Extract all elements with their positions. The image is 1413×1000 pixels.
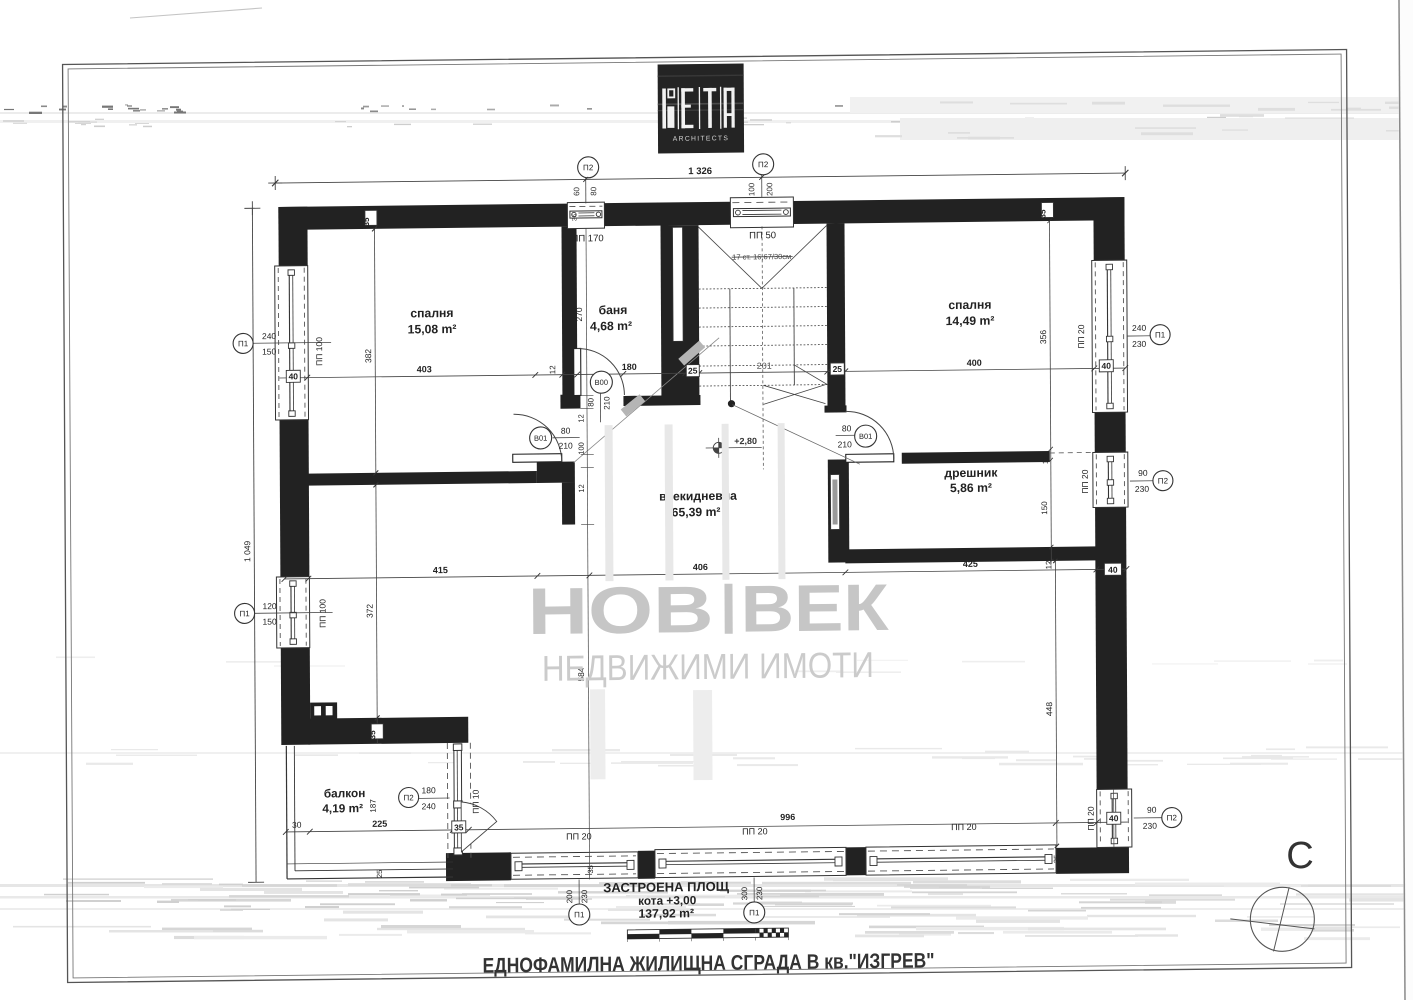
svg-text:200: 200 xyxy=(765,182,774,196)
svg-text:35: 35 xyxy=(1038,209,1047,219)
svg-text:ARCHITECTS: ARCHITECTS xyxy=(673,135,729,143)
svg-text:382: 382 xyxy=(363,349,373,364)
svg-text:+2,80: +2,80 xyxy=(734,436,757,446)
svg-text:12: 12 xyxy=(1044,560,1053,570)
svg-text:40: 40 xyxy=(1102,361,1112,371)
svg-text:25: 25 xyxy=(375,870,384,878)
svg-text:150: 150 xyxy=(1040,501,1049,515)
svg-text:Π1: Π1 xyxy=(749,908,760,917)
svg-text:12: 12 xyxy=(577,414,586,422)
svg-text:15,08 m²: 15,08 m² xyxy=(408,322,457,337)
svg-text:415: 415 xyxy=(433,565,448,575)
svg-text:35: 35 xyxy=(362,217,371,227)
svg-text:12: 12 xyxy=(548,365,557,375)
svg-text:B01: B01 xyxy=(534,434,547,443)
svg-text:200: 200 xyxy=(565,889,574,903)
svg-text:1 049: 1 049 xyxy=(242,540,252,562)
svg-text:80: 80 xyxy=(586,397,595,407)
svg-text:35: 35 xyxy=(1052,855,1061,863)
svg-text:5,86 m²: 5,86 m² xyxy=(950,481,992,495)
svg-text:Π2: Π2 xyxy=(758,160,769,169)
svg-text:230: 230 xyxy=(1135,484,1150,494)
svg-text:НЕДВИЖИМИ ИМОТИ: НЕДВИЖИМИ ИМОТИ xyxy=(542,644,874,689)
svg-text:35: 35 xyxy=(586,865,595,873)
svg-text:1 326: 1 326 xyxy=(688,166,712,177)
svg-text:201: 201 xyxy=(757,361,772,371)
svg-text:120: 120 xyxy=(262,601,277,611)
svg-text:80: 80 xyxy=(842,423,852,433)
svg-text:НОВ: НОВ xyxy=(527,572,713,648)
svg-text:40: 40 xyxy=(289,371,299,381)
svg-text:210: 210 xyxy=(838,439,853,449)
svg-text:403: 403 xyxy=(417,364,432,374)
svg-text:12: 12 xyxy=(1041,456,1050,464)
svg-text:230: 230 xyxy=(1132,339,1147,349)
svg-text:180: 180 xyxy=(421,785,436,795)
svg-text:ΠΠ 170: ΠΠ 170 xyxy=(571,233,603,244)
svg-text:B00: B00 xyxy=(595,378,608,387)
svg-text:4,68 m²: 4,68 m² xyxy=(590,319,632,333)
svg-text:356: 356 xyxy=(1038,330,1048,345)
svg-text:4,19 m²: 4,19 m² xyxy=(322,801,363,815)
svg-text:180: 180 xyxy=(622,362,637,372)
svg-text:150: 150 xyxy=(263,617,278,627)
svg-text:425: 425 xyxy=(963,559,978,569)
svg-text:ΠΠ 10: ΠΠ 10 xyxy=(471,789,481,813)
svg-text:100: 100 xyxy=(747,182,756,196)
svg-text:Π2: Π2 xyxy=(583,163,594,172)
svg-text:B01: B01 xyxy=(859,432,872,441)
svg-text:80: 80 xyxy=(589,186,598,196)
svg-text:ΠΠ 20: ΠΠ 20 xyxy=(1076,324,1086,348)
svg-text:240: 240 xyxy=(1132,323,1147,333)
svg-text:230: 230 xyxy=(1143,821,1158,831)
svg-text:С: С xyxy=(1286,835,1314,877)
svg-text:240: 240 xyxy=(262,331,277,341)
svg-text:996: 996 xyxy=(780,812,795,822)
svg-text:спалня: спалня xyxy=(948,298,991,313)
svg-text:400: 400 xyxy=(967,358,982,368)
svg-text:спалня: спалня xyxy=(410,306,453,321)
svg-text:210: 210 xyxy=(559,441,574,451)
svg-text:448: 448 xyxy=(1044,702,1054,717)
svg-text:100: 100 xyxy=(577,442,586,455)
svg-text:80: 80 xyxy=(561,426,571,436)
svg-text:ΠΠ 50: ΠΠ 50 xyxy=(749,230,776,241)
svg-text:210: 210 xyxy=(602,396,611,410)
svg-text:36: 36 xyxy=(571,213,578,221)
svg-text:372: 372 xyxy=(365,604,375,619)
svg-text:Π1: Π1 xyxy=(238,339,249,348)
svg-text:60: 60 xyxy=(572,186,581,196)
svg-text:65,39 m²: 65,39 m² xyxy=(672,505,721,520)
svg-text:230: 230 xyxy=(580,889,589,903)
svg-text:90: 90 xyxy=(1147,805,1157,815)
svg-text:ВЕК: ВЕК xyxy=(740,570,889,646)
svg-text:Π1: Π1 xyxy=(1155,330,1166,339)
svg-text:балкон: балкон xyxy=(324,786,365,800)
svg-text:ΠΠ 20: ΠΠ 20 xyxy=(742,826,768,836)
svg-text:25: 25 xyxy=(833,364,843,374)
svg-text:300: 300 xyxy=(740,886,749,900)
svg-text:Π1: Π1 xyxy=(574,910,585,919)
svg-text:35: 35 xyxy=(368,730,377,740)
svg-text:баня: баня xyxy=(599,303,628,317)
svg-text:30: 30 xyxy=(292,820,302,830)
svg-text:270: 270 xyxy=(574,307,584,322)
svg-text:Π2: Π2 xyxy=(1167,813,1178,822)
svg-text:ΠΠ 100: ΠΠ 100 xyxy=(318,599,328,628)
svg-text:ΠΠ 20: ΠΠ 20 xyxy=(1086,806,1096,830)
svg-text:40: 40 xyxy=(1108,565,1118,575)
svg-text:Π1: Π1 xyxy=(239,609,250,618)
svg-text:ΠΠ 20: ΠΠ 20 xyxy=(951,822,977,832)
svg-text:14,49 m²: 14,49 m² xyxy=(946,314,995,329)
svg-text:150: 150 xyxy=(262,347,277,357)
svg-text:ΠΠ 20: ΠΠ 20 xyxy=(1080,469,1090,493)
svg-text:35: 35 xyxy=(454,822,464,832)
svg-text:Π2: Π2 xyxy=(1158,476,1169,485)
svg-text:40: 40 xyxy=(1109,813,1119,823)
svg-text:25: 25 xyxy=(688,366,698,376)
svg-text:187: 187 xyxy=(369,799,378,813)
svg-text:230: 230 xyxy=(755,886,764,900)
svg-text:240: 240 xyxy=(422,801,437,811)
svg-text:ΠΠ 100: ΠΠ 100 xyxy=(314,337,324,366)
svg-text:ΠΠ 20: ΠΠ 20 xyxy=(566,831,592,841)
svg-text:137,92 m²: 137,92 m² xyxy=(638,906,694,921)
svg-text:225: 225 xyxy=(372,819,387,829)
svg-text:дрешник: дрешник xyxy=(944,466,998,481)
svg-text:Π2: Π2 xyxy=(403,793,414,802)
svg-text:406: 406 xyxy=(693,562,708,572)
svg-text:12: 12 xyxy=(577,484,586,492)
svg-text:90: 90 xyxy=(1138,468,1148,478)
